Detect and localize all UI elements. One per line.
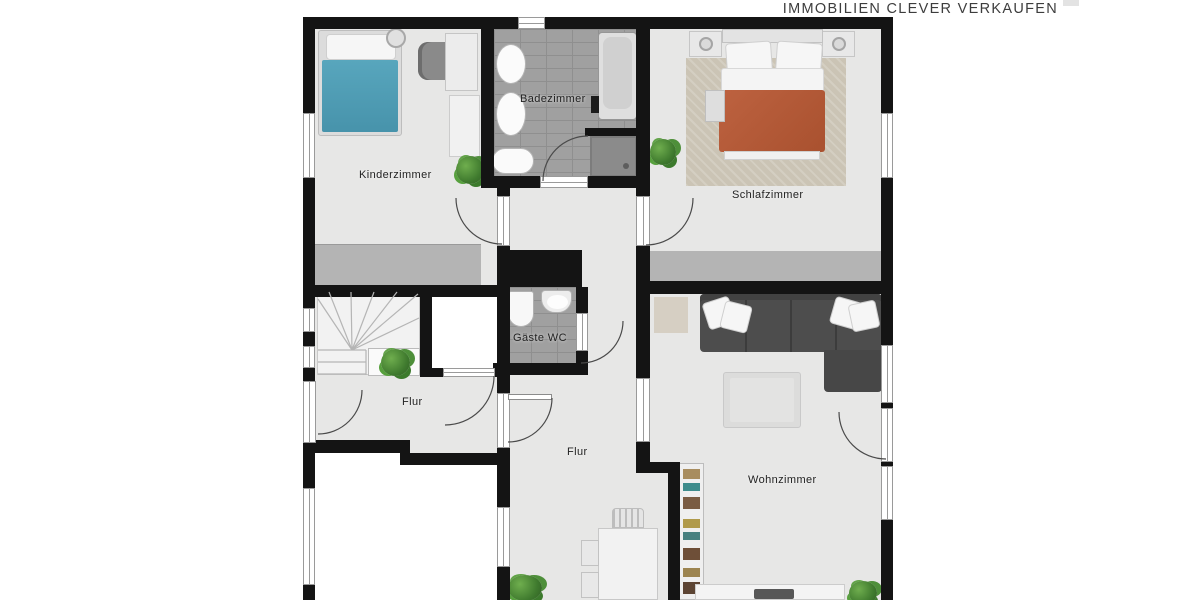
wall-stairs-storage [420,287,432,377]
bedside-lamp-icon [832,37,846,51]
door-frame-schlafzimmer [636,196,650,246]
hall-chair [612,508,644,528]
plant-icon [849,581,877,600]
toilet [508,291,534,327]
door-frame-storage [443,368,495,377]
window [518,17,545,29]
brand-tagline: IMMOBILIEN CLEVER VERKAUFEN [783,1,1058,17]
door-frame-wc [576,313,588,351]
door-frame-badezimmer [540,176,588,188]
radiator [591,96,599,113]
interior-window [497,507,510,567]
door-leaf [508,394,552,400]
window [303,308,315,332]
wall-wohn-top [646,281,881,294]
wall-room-top-a [315,440,410,453]
interior-window [636,378,650,442]
bathtub [598,32,637,120]
room-label-badezimmer: Badezimmer [520,93,586,105]
floor-mat [654,297,688,333]
window [881,466,893,520]
sofa-chaise [824,350,882,392]
kids-bed-blanket [322,60,398,132]
room-label-kinderzimmer: Kinderzimmer [359,169,432,181]
floor-plan: IMMOBILIEN CLEVER VERKAUFEN [0,0,1200,600]
toilet [492,148,534,174]
window [881,113,893,178]
storage-room-floor [432,287,497,368]
balcony-door-frame [881,408,893,462]
side-bench [705,90,725,122]
entrance-door-frame [303,381,316,443]
tv-bench [695,584,845,600]
gray-zone-edge [315,244,481,245]
hall-chair [581,540,599,566]
coffee-table [723,372,801,428]
wall-top [303,17,893,29]
window [881,345,893,403]
sofa-pillow [847,299,880,332]
wall-wohn-jog [636,462,680,473]
room-label-wohnzimmer: Wohnzimmer [748,474,817,486]
shower [590,136,637,177]
sink [496,44,526,84]
shower-wall [585,128,637,136]
wall-block [497,250,582,287]
master-bed-blanket [719,90,825,152]
room-label-flur-upper: Flur [402,396,423,408]
room-label-schlafzimmer: Schlafzimmer [732,189,803,201]
gray-zone-right [649,251,881,281]
door-frame-kinderzimmer [497,196,510,246]
wall-stairs-top [303,285,497,297]
hall-chair [581,572,599,598]
bed-foot-bench [724,151,820,160]
gray-zone-left [315,245,481,287]
plant-icon [456,156,484,184]
kids-cabinet [449,95,480,157]
window [303,346,315,368]
ceiling-lamp-icon [386,28,406,48]
bedside-lamp-icon [699,37,713,51]
wall-room-top-b [400,453,498,465]
kids-desk [445,33,478,91]
wall-kinder-bad [481,17,494,188]
plant-icon [650,139,676,165]
logo-fragment [1063,0,1079,6]
room-label-gaeste-wc: Gäste WC [513,332,567,344]
room-label-flur-lower: Flur [567,446,588,458]
window [303,113,315,178]
wall-wohn-left-lower [668,473,680,600]
door-frame-flur [497,393,510,448]
window [303,488,315,585]
hall-table [598,528,658,600]
bottom-left-room-floor [315,453,497,600]
bed-headboard [722,29,823,43]
bookshelf [679,463,704,600]
plant-icon [508,575,542,600]
plant-icon [381,349,410,376]
